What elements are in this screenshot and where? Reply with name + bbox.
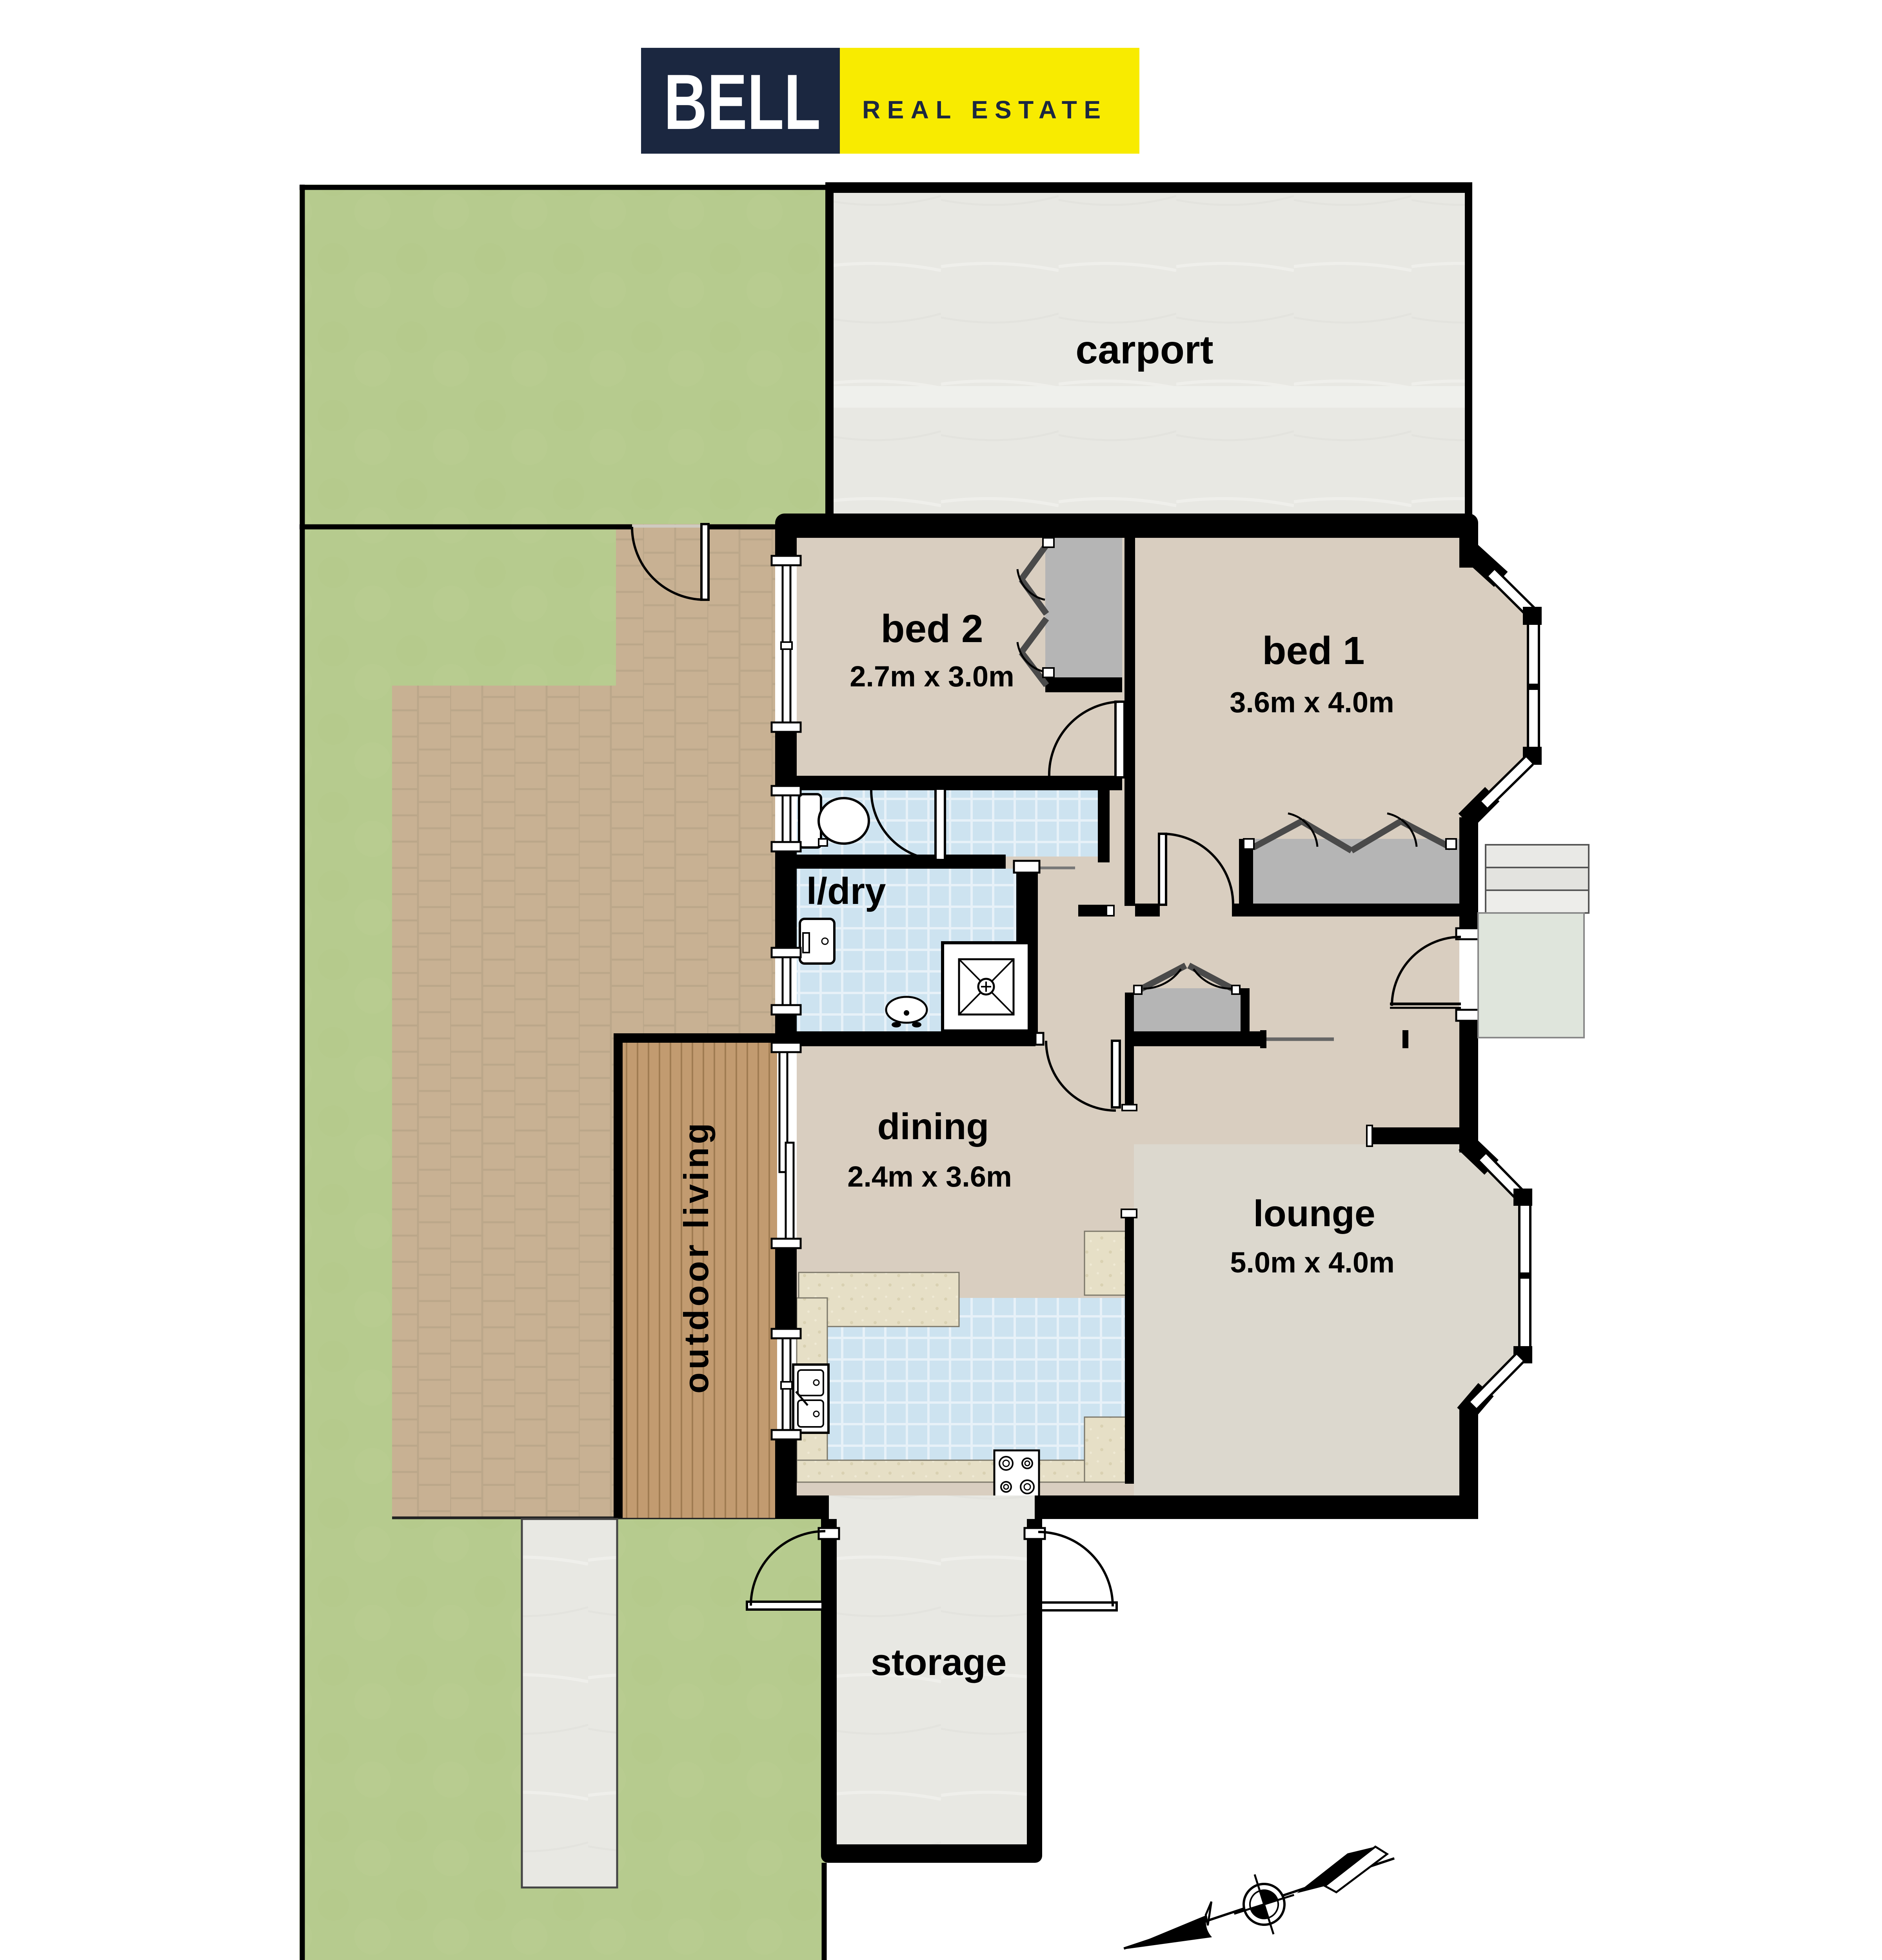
svg-text:dining: dining — [877, 1106, 989, 1147]
svg-text:2.7m x 3.0m: 2.7m x 3.0m — [850, 660, 1014, 693]
svg-text:3.6m x 4.0m: 3.6m x 4.0m — [1230, 686, 1394, 719]
svg-text:l/dry: l/dry — [807, 870, 886, 912]
svg-text:carport: carport — [1075, 327, 1213, 372]
svg-text:bed 1: bed 1 — [1262, 629, 1364, 673]
svg-text:5.0m x 4.0m: 5.0m x 4.0m — [1230, 1246, 1395, 1279]
svg-text:REAL ESTATE: REAL ESTATE — [862, 96, 1101, 124]
svg-text:BELL: BELL — [664, 58, 821, 146]
svg-text:storage: storage — [871, 1641, 1007, 1683]
svg-text:outdoor living: outdoor living — [677, 1123, 716, 1394]
svg-text:lounge: lounge — [1253, 1193, 1375, 1234]
svg-text:bed 2: bed 2 — [881, 607, 983, 651]
svg-text:2.4m x 3.6m: 2.4m x 3.6m — [847, 1160, 1012, 1193]
